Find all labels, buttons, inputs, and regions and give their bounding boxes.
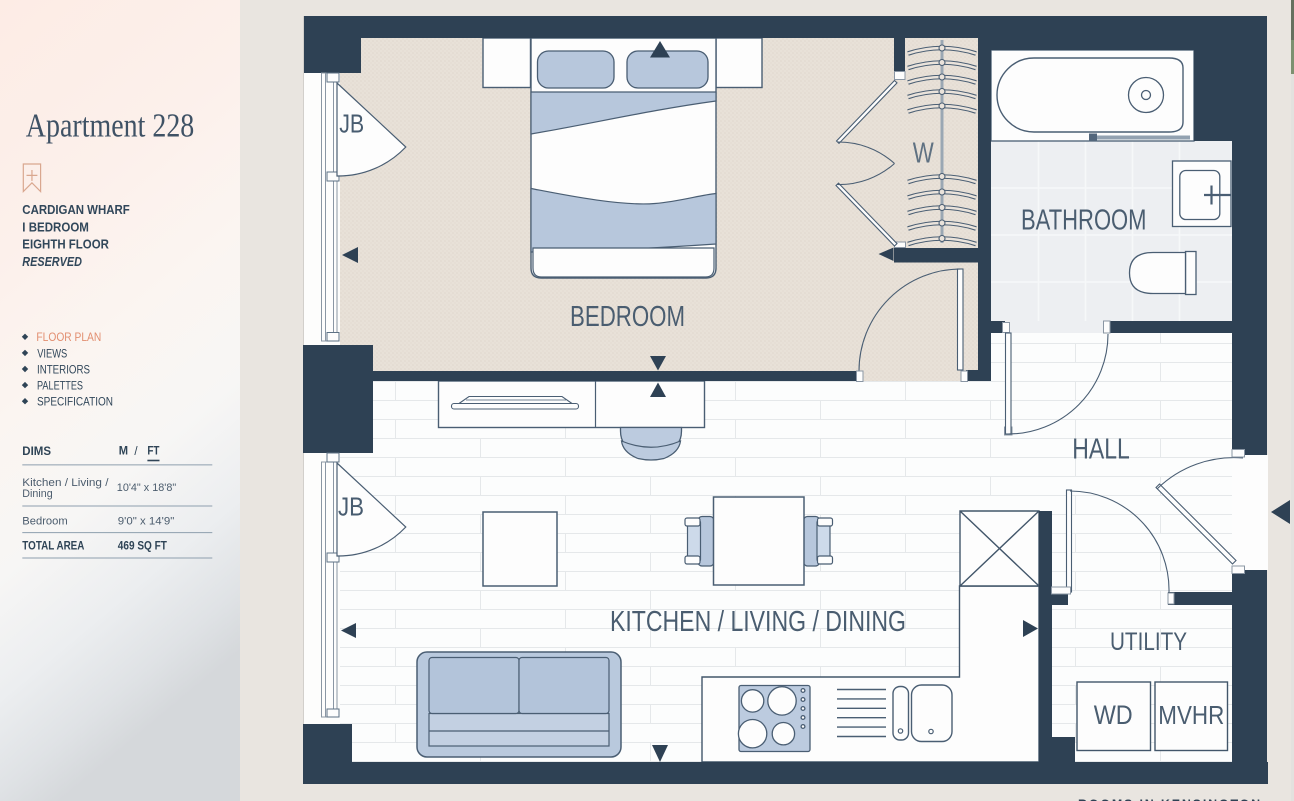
svg-text:KITCHEN / LIVING / DINING: KITCHEN / LIVING / DINING — [610, 606, 906, 638]
svg-text:EIGHTH FLOOR: EIGHTH FLOOR — [22, 237, 109, 252]
svg-text:Dining: Dining — [22, 488, 52, 500]
svg-text:RESERVED: RESERVED — [22, 254, 82, 269]
svg-text:TOTAL AREA: TOTAL AREA — [22, 541, 84, 553]
svg-text:FLOOR PLAN: FLOOR PLAN — [36, 330, 101, 344]
svg-text:I BEDROOM: I BEDROOM — [22, 219, 89, 234]
svg-text:W: W — [913, 138, 934, 170]
svg-text:MVHR: MVHR — [1158, 700, 1224, 730]
svg-text:M: M — [119, 446, 128, 458]
svg-text:Bedroom: Bedroom — [22, 516, 67, 528]
svg-text:UTILITY: UTILITY — [1110, 628, 1187, 656]
svg-text:CARDIGAN WHARF: CARDIGAN WHARF — [22, 202, 130, 217]
svg-text:SPECIFICATION: SPECIFICATION — [37, 395, 113, 409]
svg-text:VIEWS: VIEWS — [37, 346, 67, 360]
svg-text:PALETTES: PALETTES — [37, 379, 83, 393]
svg-text:10'4" x 18'8": 10'4" x 18'8" — [117, 482, 176, 494]
svg-text:DIMS: DIMS — [22, 446, 51, 458]
svg-text:ROOMS IN KENSINGTON: ROOMS IN KENSINGTON — [1078, 797, 1262, 801]
svg-text:HALL: HALL — [1072, 434, 1130, 466]
svg-text:INTERIORS: INTERIORS — [37, 363, 90, 377]
svg-text:BEDROOM: BEDROOM — [570, 301, 685, 333]
svg-text:Apartment 228: Apartment 228 — [26, 108, 195, 145]
svg-text:JB: JB — [339, 109, 364, 139]
svg-text:FT: FT — [147, 446, 159, 458]
svg-text:BATHROOM: BATHROOM — [1021, 205, 1147, 237]
svg-text:JB: JB — [338, 492, 364, 522]
svg-text:WD: WD — [1094, 700, 1133, 730]
svg-text:469 SQ FT: 469 SQ FT — [118, 541, 167, 553]
svg-text:9'0" x 14'9": 9'0" x 14'9" — [118, 516, 175, 528]
